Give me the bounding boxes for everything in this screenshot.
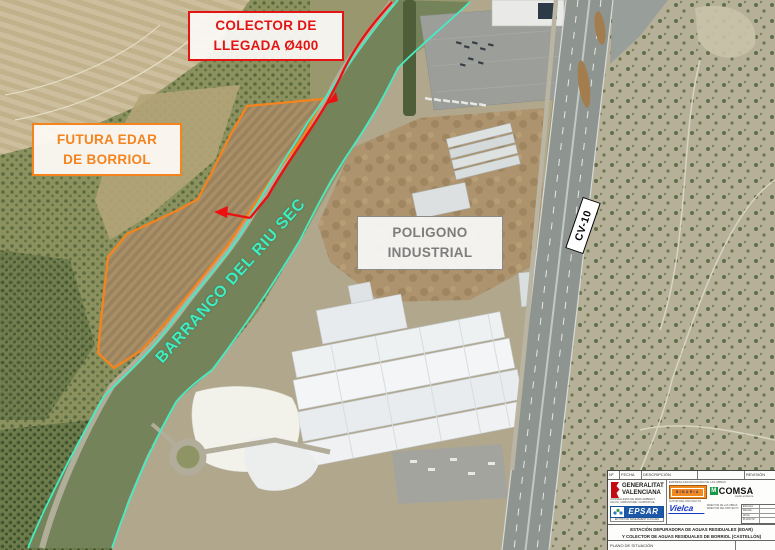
colector-line2: LLEGADA Ø400 bbox=[213, 36, 318, 56]
futura-edar-label: FUTURA EDAR DE BORRIOL bbox=[32, 123, 182, 176]
rev-col-num: Nº bbox=[608, 471, 620, 479]
plan-title: PLANO DE SITUACIÓN bbox=[608, 541, 735, 550]
info-hoja: HOJA bbox=[742, 514, 760, 518]
epsar-subtitle: ENTITAT DE SANEJAMENT D'AIGÜES bbox=[610, 518, 664, 522]
aerial-photo bbox=[0, 0, 775, 550]
project-title: ESTACIÓN DEPURADORA DE AGUAS RESIDUALES … bbox=[608, 525, 775, 541]
colector-line1: COLECTOR DE bbox=[215, 16, 316, 36]
drawing-title-block: Nº FECHA DESCRIPCIÓN REVISIÓN GENERALITA… bbox=[607, 470, 775, 550]
gv-dept2: AIGUA, URBANISME I HABITATGE bbox=[610, 501, 664, 504]
comsa-subtitle: medio ambiente bbox=[710, 496, 754, 499]
poligono-line1: POLIGONO bbox=[392, 223, 467, 243]
service-yard bbox=[392, 444, 508, 504]
epsar-logo: EPSAR bbox=[610, 506, 664, 518]
vielca-logo: Vielca bbox=[668, 504, 705, 514]
director-proyecto: DIRECTOR DEL PROYECTO bbox=[707, 507, 739, 510]
administration-panel: GENERALITAT VALENCIANA CONSELLERIA DE ME… bbox=[608, 480, 667, 524]
plan-number-cell bbox=[735, 541, 775, 550]
aerial-map-view: COLECTOR DE LLEGADA Ø400 FUTURA EDAR DE … bbox=[0, 0, 775, 550]
roundabout bbox=[173, 442, 203, 472]
info-fecha: FECHA bbox=[742, 509, 760, 513]
directors-cells: DIRECTOR DE LAS OBRAS DIRECTOR DEL PROYE… bbox=[707, 504, 739, 510]
epsar-wordmark: EPSAR bbox=[624, 507, 663, 517]
edar-line2: DE BORRIOL bbox=[63, 150, 151, 170]
poligono-line2: INDUSTRIAL bbox=[388, 243, 473, 263]
rev-col-revision: REVISIÓN bbox=[745, 471, 775, 479]
colector-llegada-label: COLECTOR DE LLEGADA Ø400 bbox=[188, 11, 344, 61]
gv-name2: VALENCIANA bbox=[622, 490, 664, 497]
rev-col-fecha: FECHA bbox=[620, 471, 642, 479]
tree-hedge bbox=[403, 0, 416, 116]
comsa-m-icon: M bbox=[710, 487, 718, 495]
plan-title-row: PLANO DE SITUACIÓN bbox=[608, 541, 775, 550]
info-escala: ESCALA bbox=[742, 505, 760, 509]
rev-col-spacer bbox=[698, 471, 745, 479]
project-title-line1: ESTACIÓN DEPURADORA DE AGUAS RESIDUALES … bbox=[608, 527, 775, 534]
companies-panel: EMPRESA ADJUDICATARIA DE LAS OBRAS BINAR… bbox=[667, 480, 775, 524]
rev-col-descripcion: DESCRIPCIÓN bbox=[642, 471, 698, 479]
gv-name1: GENERALITAT bbox=[622, 483, 664, 490]
water-drops-icon bbox=[613, 508, 623, 516]
binaria-logo: BINARIA bbox=[669, 485, 707, 499]
poligono-industrial-label: POLIGONO INDUSTRIAL bbox=[357, 216, 503, 270]
revision-header-row: Nº FECHA DESCRIPCIÓN REVISIÓN bbox=[608, 471, 775, 480]
generalitat-valenciana-emblem-icon bbox=[610, 482, 620, 498]
info-plano-num: PLANO Nº bbox=[742, 518, 760, 523]
binaria-wordmark: BINARIA bbox=[676, 490, 700, 494]
project-title-line2: Y COLECTOR DE AGUAS RESIDUALES DE BORRIO… bbox=[608, 534, 775, 541]
comsa-logo: M COMSA medio ambiente bbox=[710, 486, 754, 499]
edar-line1: FUTURA EDAR bbox=[57, 130, 157, 150]
plan-info-table: ESCALA FECHA HOJA PLANO Nº bbox=[741, 504, 775, 524]
